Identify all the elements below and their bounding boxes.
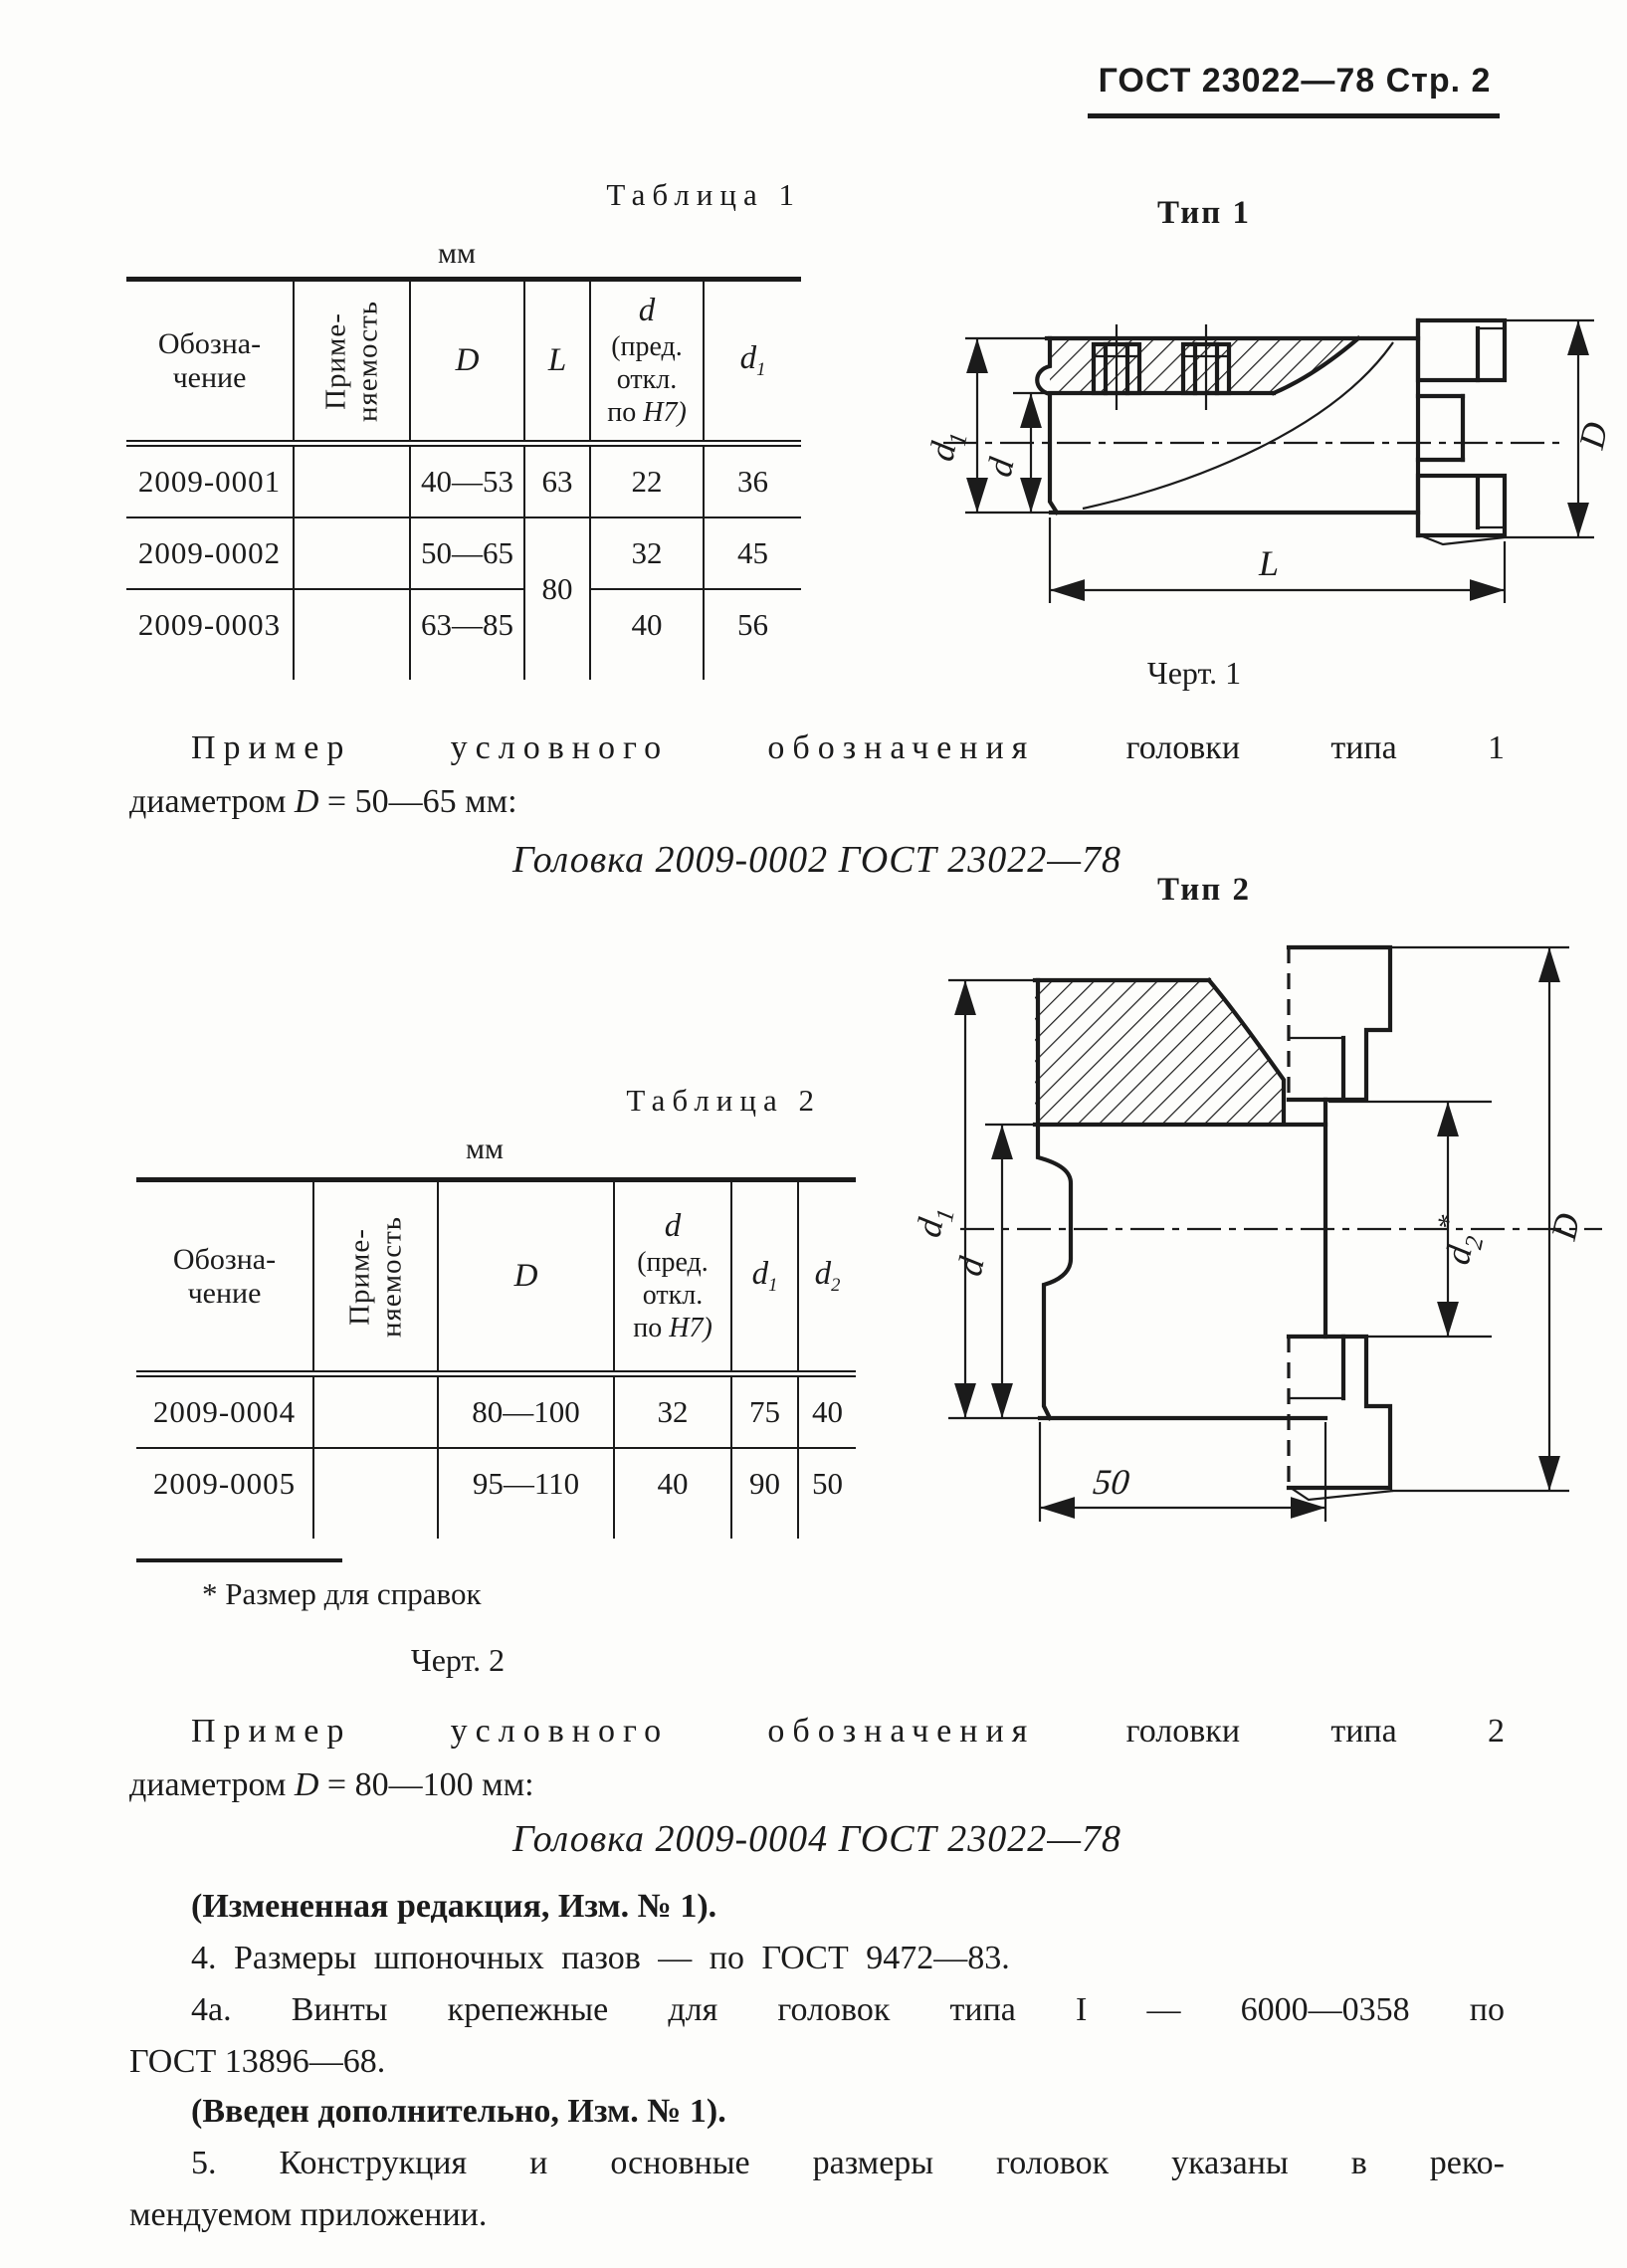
note-added: (Введен дополнительно, Изм. № 1). — [129, 2090, 1505, 2134]
table2-col-d2: d2 — [798, 1180, 856, 1374]
table1-col-D: D — [410, 280, 524, 444]
table2-rule-extension — [136, 1519, 856, 1539]
example2-line2: диаметром D = 80—100 мм: — [129, 1763, 1505, 1807]
note-paragraph-4: 4. Размеры шпоночных пазов — по ГОСТ 947… — [129, 1937, 1505, 1980]
table1-header-row: Обозна- чение Приме- няемость D L d (пре… — [126, 280, 801, 444]
fig2-technical-drawing: d1 d d2* D 50 — [891, 930, 1627, 1567]
table1-col-designation: Обозна- чение — [126, 280, 294, 444]
empty-cell — [294, 444, 410, 518]
table1-col-L: L — [524, 280, 590, 444]
example1-line2: диаметром D = 50—65 мм: — [129, 780, 1505, 824]
table2-unit: мм — [466, 1133, 504, 1166]
fig1-dim-d1-label: d1 — [921, 426, 973, 466]
table2-col-applicability: Приме- няемость — [313, 1180, 438, 1374]
table2-footnote: * Размер для справок — [202, 1576, 482, 1612]
table1-caption: Таблица 1 — [126, 177, 801, 213]
note-paragraph-4a-line2: ГОСТ 13896—68. — [129, 2040, 1505, 2084]
fig2-dim-d1-label: d1 — [909, 1202, 960, 1242]
fig2-hatch-section — [1035, 980, 1325, 1125]
empty-cell — [294, 589, 410, 660]
table2-col-designation: Обозна- чение — [136, 1180, 313, 1374]
note-paragraph-5-line1: 5. Конструкция и основные размеры голово… — [129, 2142, 1505, 2185]
fig2-type-label: Тип 2 — [1005, 872, 1403, 909]
table2-row-1: 2009-0004 80—100 32 75 40 — [136, 1374, 856, 1449]
empty-cell — [313, 1448, 438, 1519]
empty-cell — [294, 517, 410, 589]
table1-row-3: 2009-0003 63—85 40 56 — [126, 589, 801, 660]
table1-col-d: d (пред. откл. по H7) — [590, 280, 704, 444]
table2-row-2: 2009-0005 95—110 40 90 50 — [136, 1448, 856, 1519]
table1-L-merged-cell: 80 — [524, 517, 590, 660]
header-underline — [1088, 113, 1500, 118]
table2-header-row: Обозна- чение Приме- няемость D d (пред.… — [136, 1180, 856, 1374]
example2-line1: Пример условного обозначения головки тип… — [129, 1710, 1505, 1753]
table1-row-2: 2009-0002 50—65 80 32 45 — [126, 517, 801, 589]
table1-col-d1: d1 — [704, 280, 801, 444]
fig2-dim-length-label: 50 — [1092, 1462, 1131, 1502]
fig1-dim-d-label: d — [979, 454, 1022, 481]
table1-col-applicability: Приме- няемость — [294, 280, 410, 444]
table1-rule-extension — [126, 660, 801, 680]
fig1-flange — [1418, 320, 1505, 544]
empty-cell — [313, 1374, 438, 1449]
scanned-gost-page: ГОСТ 23022—78 Стр. 2 Таблица 1 мм Обозна… — [0, 0, 1627, 2268]
example1-line1: Пример условного обозначения головки тип… — [129, 726, 1505, 770]
fig1-dim-L-label: L — [1258, 543, 1279, 583]
table2-col-d1: d1 — [731, 1180, 798, 1374]
note-changed-revision: (Измененная редакция, Изм. № 1). — [129, 1885, 1505, 1929]
fig2-dim-d2-label: d2* — [1424, 1212, 1492, 1269]
table1: Обозна- чение Приме- няемость D L d (пре… — [126, 277, 801, 680]
fig1-technical-drawing: d1 d D L — [856, 299, 1627, 642]
table2-caption: Таблица 2 — [136, 1083, 821, 1119]
example2-designation: Головка 2009-0004 ГОСТ 23022—78 — [129, 1817, 1505, 1861]
table2-col-D: D — [438, 1180, 614, 1374]
table2-col-d: d (пред. откл. по H7) — [614, 1180, 731, 1374]
note-paragraph-4a-line1: 4а. Винты крепежные для головок типа I —… — [129, 1988, 1505, 2032]
table1-unit: мм — [438, 237, 476, 271]
fig1-type-label: Тип 1 — [1005, 195, 1403, 232]
page-header: ГОСТ 23022—78 Стр. 2 — [1090, 62, 1500, 101]
note-paragraph-5-line2: мендуемом приложении. — [129, 2193, 1505, 2237]
fig2-dim-d-label: d — [949, 1253, 992, 1280]
fig2-caption: Черт. 2 — [299, 1642, 617, 1679]
footnote-rule — [136, 1558, 342, 1562]
table1-row-1: 2009-0001 40—53 63 22 36 — [126, 444, 801, 518]
table1-wrap: Обозна- чение Приме- няемость D L d (пре… — [126, 277, 801, 680]
fig1-hatch-section — [1050, 338, 1358, 393]
fig1-caption: Черт. 1 — [995, 655, 1393, 692]
table2: Обозна- чение Приме- няемость D d (пред.… — [136, 1177, 856, 1539]
table2-wrap: Обозна- чение Приме- няемость D d (пред.… — [136, 1177, 856, 1539]
